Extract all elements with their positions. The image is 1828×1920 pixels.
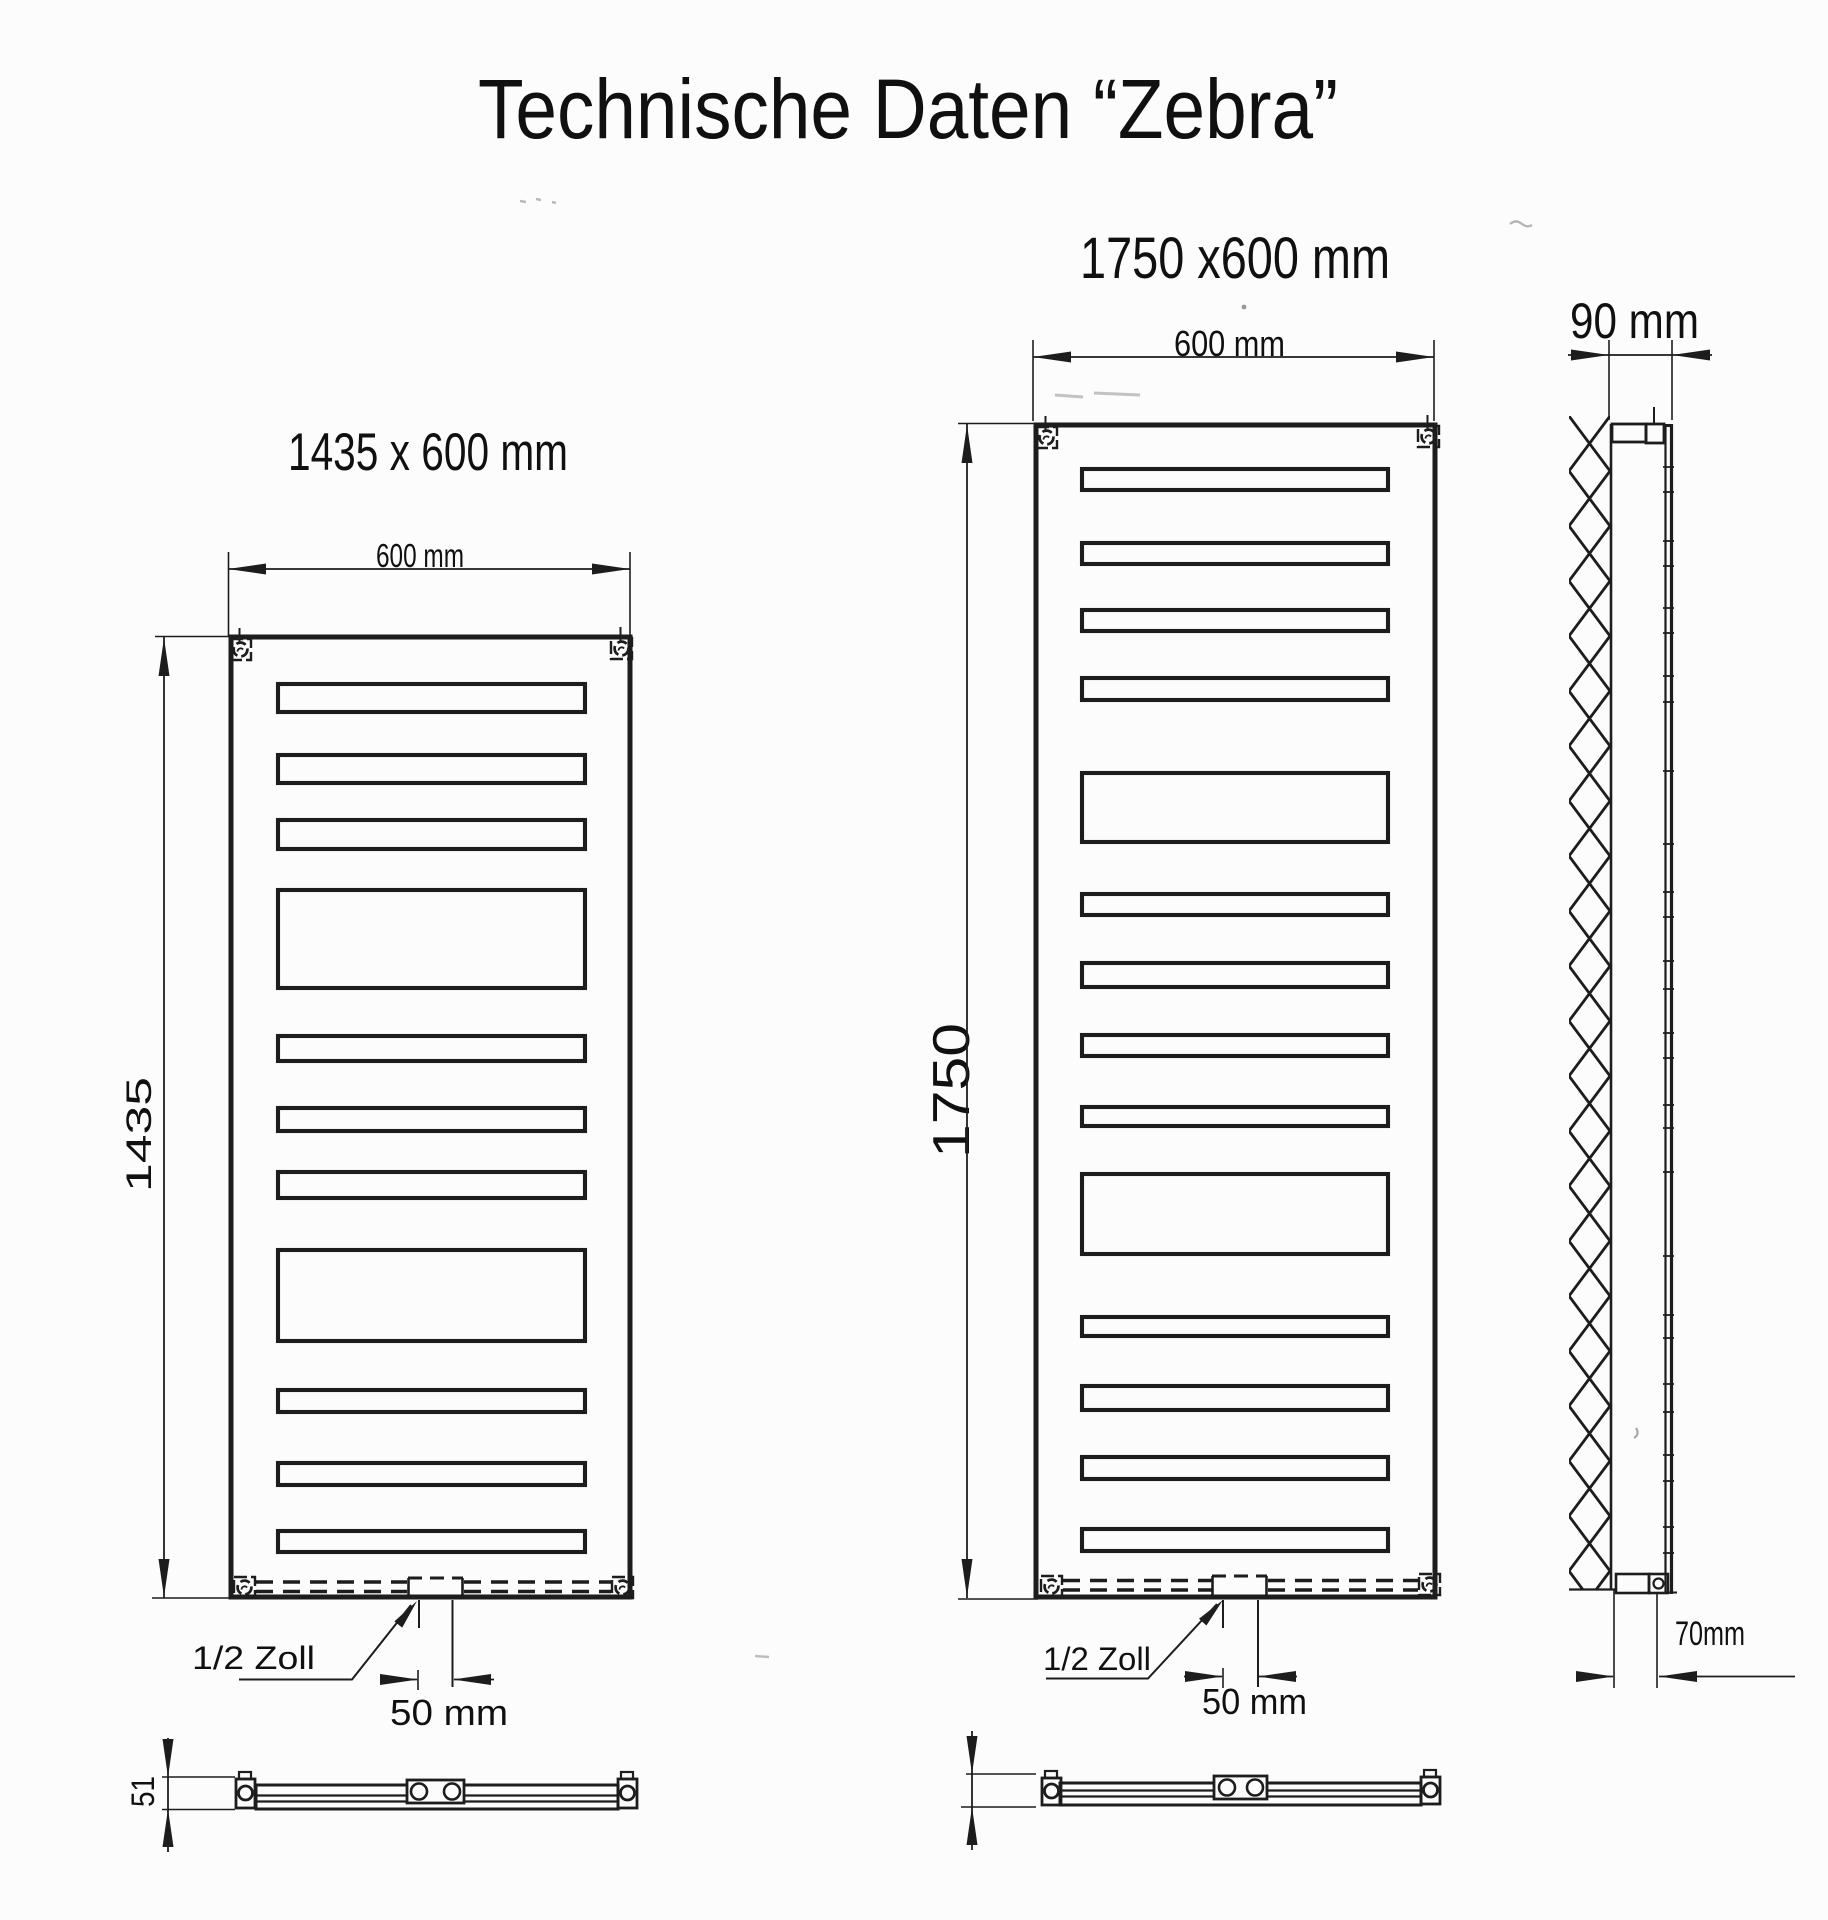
svg-text:1435 x 600 mm: 1435 x 600 mm — [288, 423, 568, 482]
svg-text:Technische Daten “Zebra”: Technische Daten “Zebra” — [478, 62, 1338, 156]
svg-text:50 mm: 50 mm — [1202, 1681, 1307, 1722]
svg-text:90 mm: 90 mm — [1570, 293, 1699, 349]
svg-text:50 mm: 50 mm — [390, 1692, 508, 1733]
svg-text:1750: 1750 — [923, 1023, 981, 1158]
svg-text:70mm: 70mm — [1675, 1615, 1745, 1653]
svg-text:1/2 Zoll: 1/2 Zoll — [1043, 1641, 1151, 1677]
svg-text:1750 x600 mm: 1750 x600 mm — [1080, 226, 1390, 291]
svg-text:1435: 1435 — [120, 1077, 159, 1192]
svg-text:1/2 Zoll: 1/2 Zoll — [192, 1640, 315, 1676]
svg-text:51: 51 — [125, 1776, 161, 1807]
